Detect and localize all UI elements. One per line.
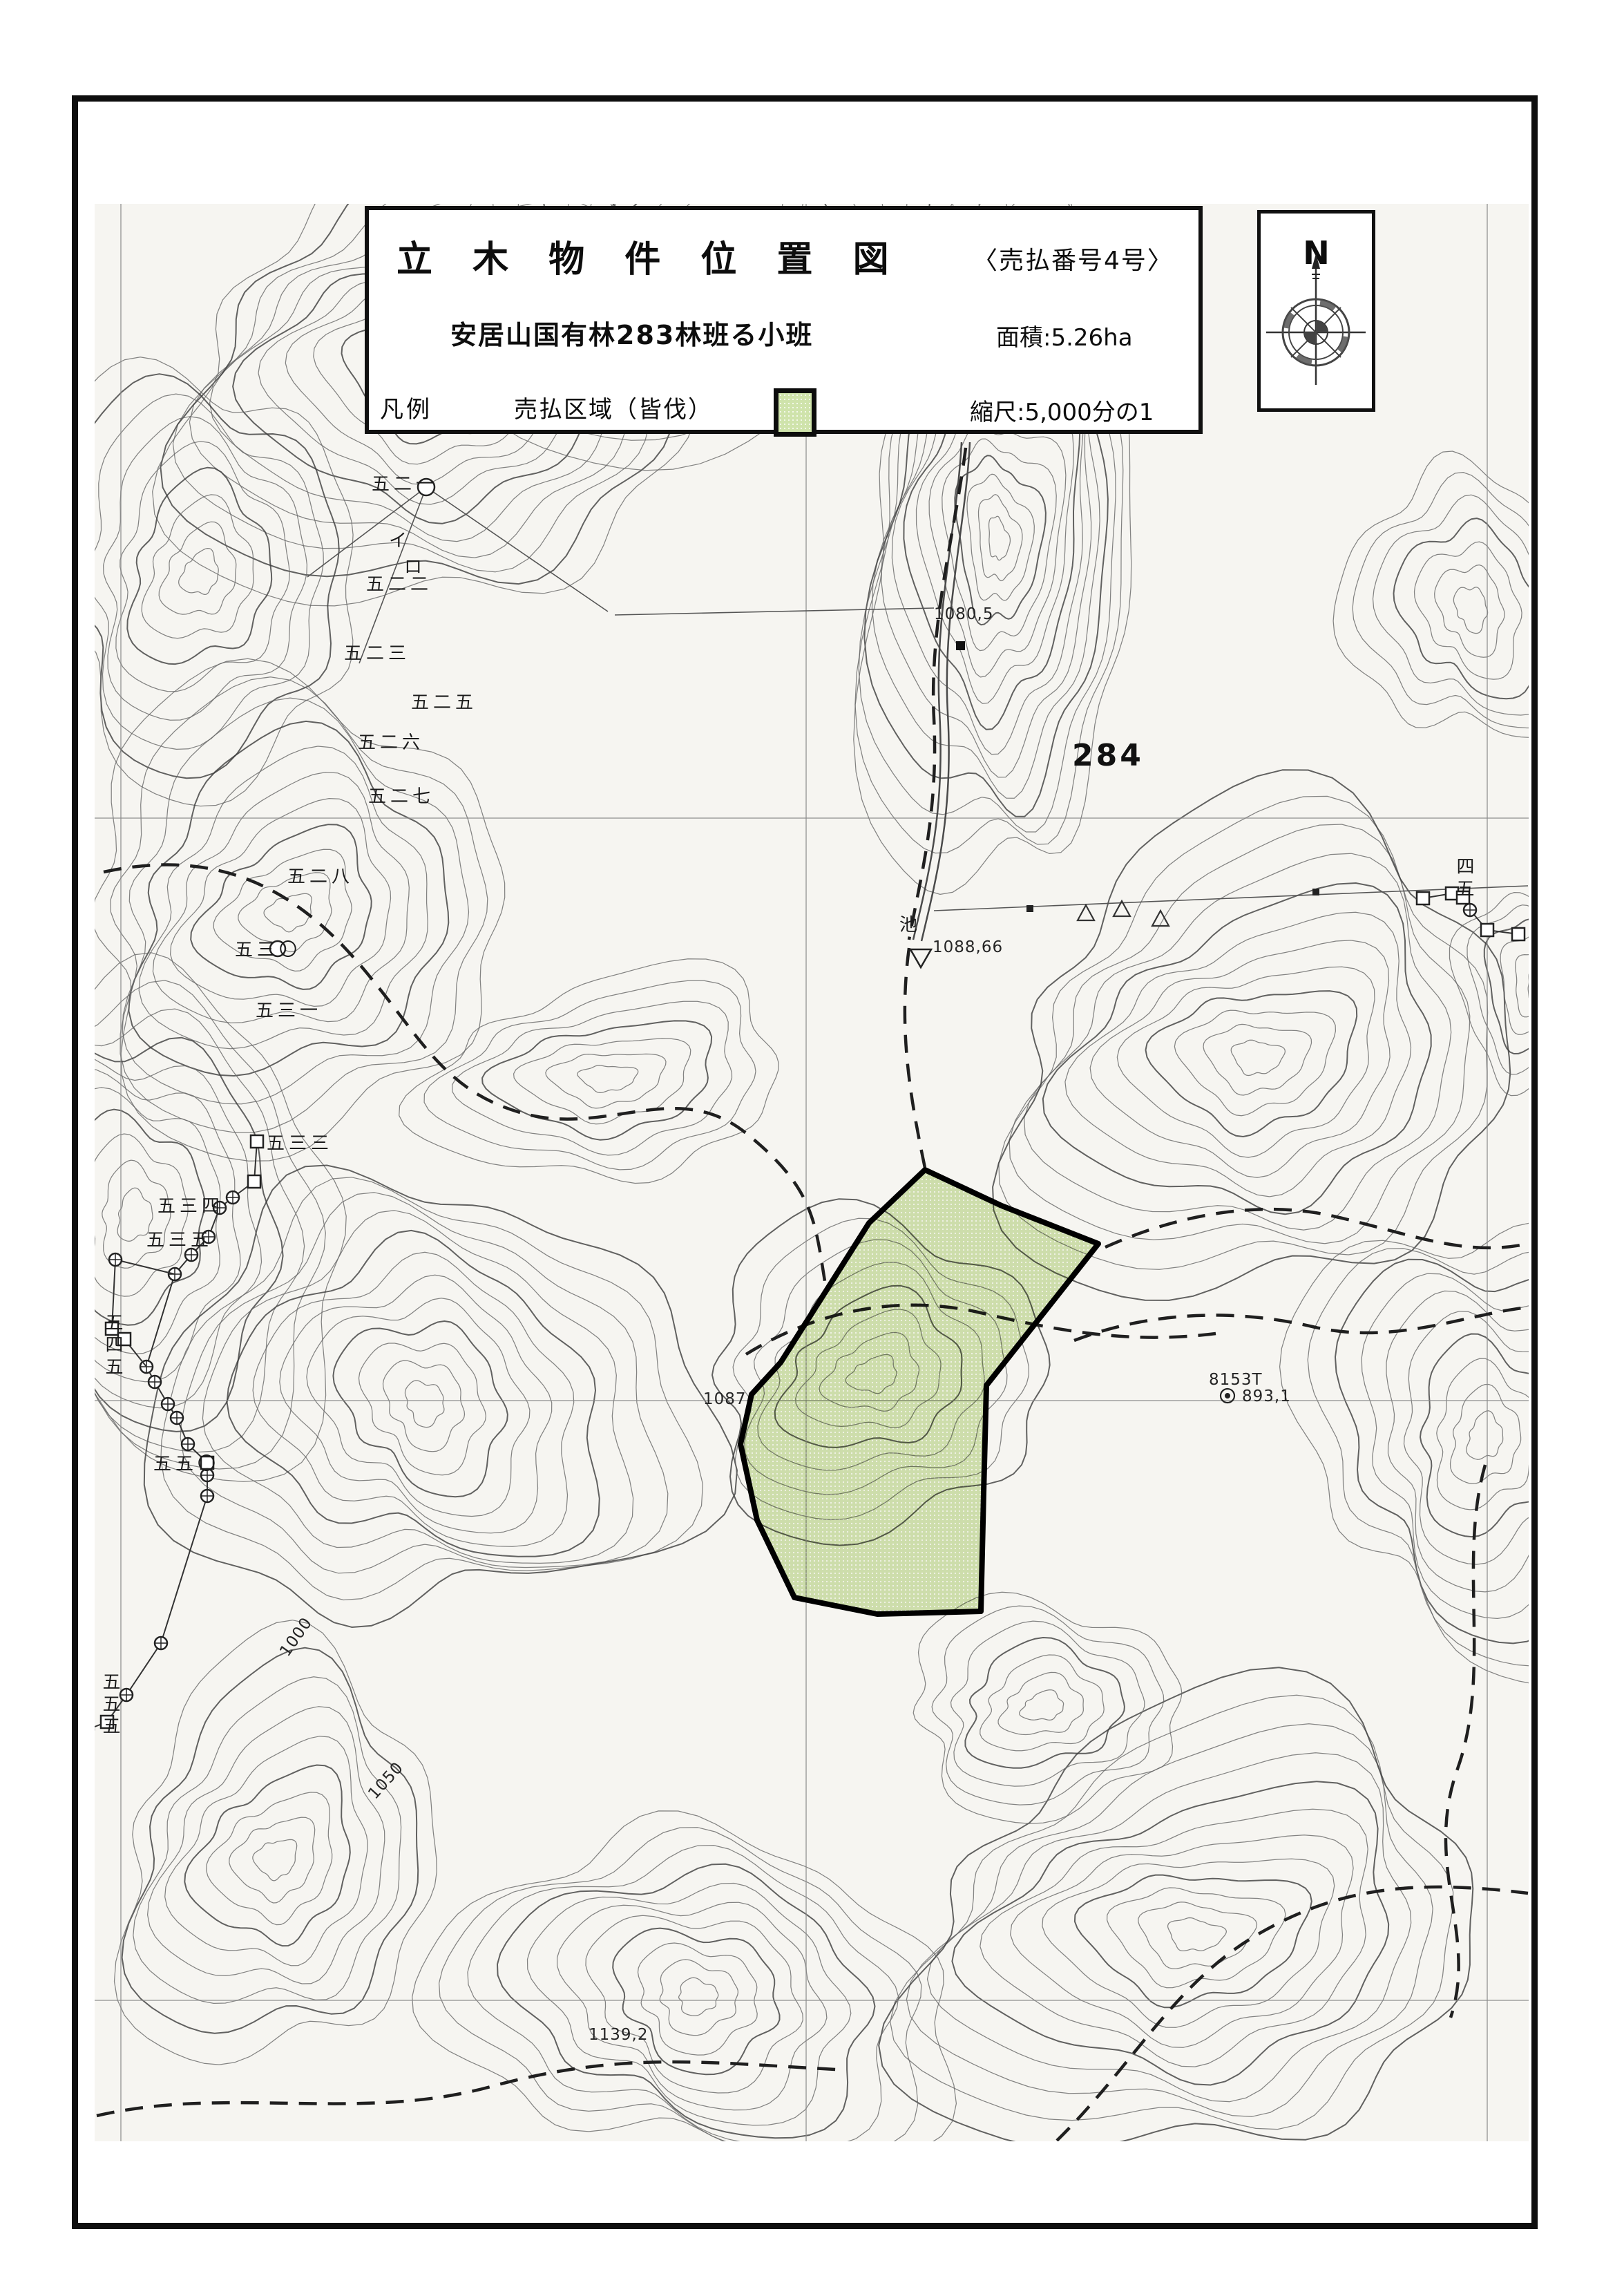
legend-sale-area-swatch: [774, 388, 816, 437]
map-label: 五五五: [101, 1672, 119, 1738]
legend-item-label: 売払区域（皆伐）: [514, 398, 713, 421]
map-label: 五三四: [157, 1197, 224, 1215]
map-label: 五二五: [411, 694, 477, 712]
map-label: 1080,5: [934, 607, 993, 623]
map-label: 五四五: [104, 1313, 122, 1379]
map-label: 1088,66: [933, 940, 1003, 956]
map-label: 8153T: [1209, 1372, 1263, 1388]
map-label: 五三三: [267, 1135, 333, 1153]
map-label: 五五〇: [153, 1455, 220, 1473]
map-label: 五二一: [372, 475, 438, 493]
map-label: 池: [899, 916, 921, 934]
map-label: 1087: [703, 1392, 747, 1407]
title-box: 立 木 物 件 位 置 図 〈売払番号4号〉 安居山国有林283林班る小班 面積…: [365, 206, 1203, 434]
map-label: 893,1: [1242, 1389, 1291, 1405]
compass-rose-icon: [1261, 214, 1372, 408]
legend-label: 凡例: [380, 398, 432, 421]
map-label: 五三一: [256, 1002, 322, 1020]
area-value: 面積:5.26ha: [996, 326, 1133, 350]
map-label: 五二七: [368, 788, 434, 806]
map-label: 五三五: [146, 1231, 213, 1249]
compartment-number-label: 284: [1072, 741, 1144, 771]
map-label: イ: [389, 532, 411, 550]
map-scale: 縮尺:5,000分の1: [970, 401, 1154, 424]
map-label: 五二八: [287, 868, 354, 886]
map-label: 五二六: [358, 734, 424, 752]
scanned-map-page: 立 木 物 件 位 置 図 〈売払番号4号〉 安居山国有林283林班る小班 面積…: [0, 0, 1624, 2294]
compass-box: N: [1257, 210, 1375, 412]
map-label: 五二二: [366, 576, 432, 594]
page-title: 立 木 物 件 位 置 図: [397, 242, 903, 278]
map-label: 四五: [1455, 857, 1473, 901]
map-label: 五二三: [344, 645, 410, 663]
map-label: 1139,2: [589, 2027, 648, 2043]
sale-number: 〈売払番号4号〉: [973, 249, 1174, 274]
forest-name: 安居山国有林283林班る小班: [450, 322, 813, 348]
map-label: 五三〇: [235, 941, 301, 959]
